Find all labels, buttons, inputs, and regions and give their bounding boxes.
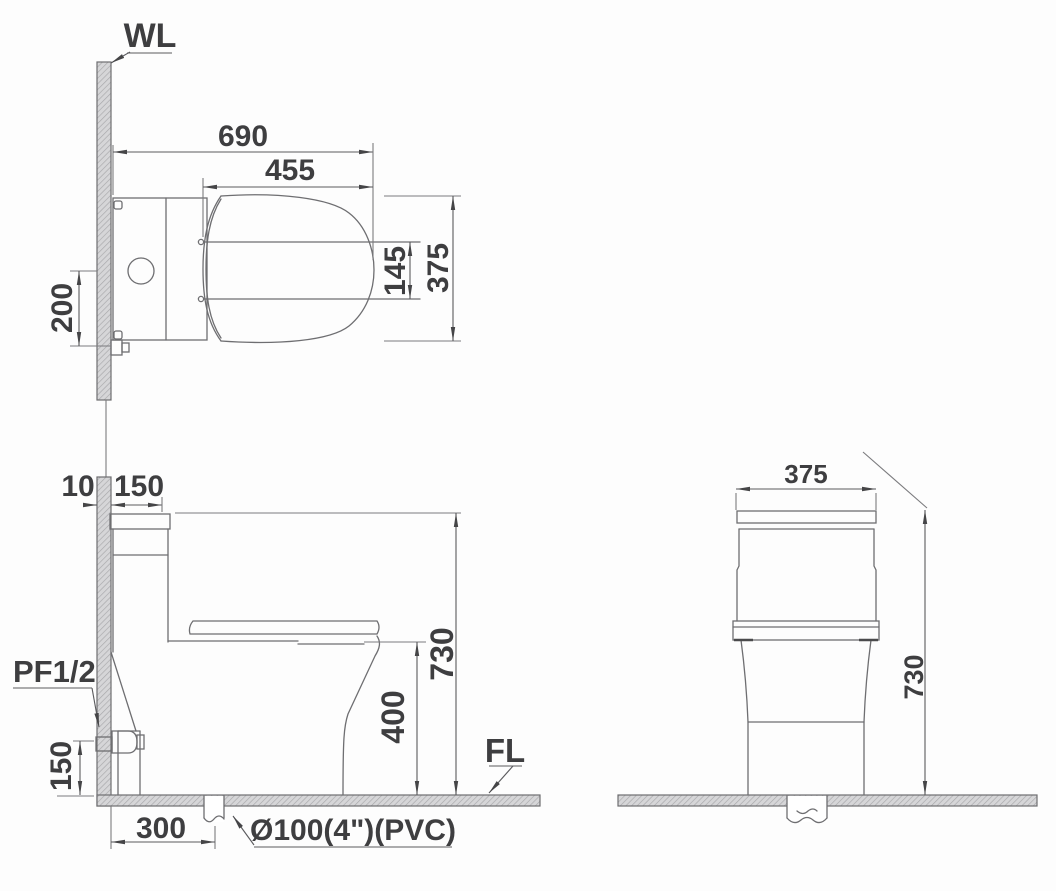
dim-overall-height-front: 730 (899, 654, 929, 699)
floor-section-side (97, 795, 540, 806)
dim-overall-depth: 690 (218, 120, 268, 153)
floor-line-label: FL (485, 732, 525, 769)
front-dimensions: 375 730 (736, 452, 929, 795)
supply-fitting-plan (111, 340, 129, 355)
drawing-canvas: WL 690 (0, 0, 1056, 891)
floor-line-leader (489, 766, 513, 793)
toilet-side-profile (110, 514, 379, 795)
plan-view: WL 690 (46, 17, 461, 477)
dim-supply-height: 150 (45, 741, 78, 791)
dim-opening-width: 145 (379, 246, 412, 296)
side-view: 10 150 730 400 150 300 PF1/2 FL Ø100(4")… (13, 470, 540, 849)
supply-label: PF1/2 (13, 654, 96, 689)
drain-pipe-side (204, 796, 224, 822)
dim-overall-width-front: 375 (784, 459, 827, 489)
toilet-front-outline (733, 511, 879, 795)
drain-pipe-front (787, 796, 827, 823)
wall-section-side (97, 477, 111, 806)
dim-seat-depth: 455 (265, 154, 315, 187)
water-line-label: WL (124, 17, 177, 55)
dim-rim-height: 400 (375, 690, 411, 743)
water-line-leader (111, 52, 130, 63)
dim-outlet-from-wall: 300 (136, 812, 186, 845)
wall-section-plan (97, 62, 111, 400)
tank-plan-outline (113, 198, 207, 340)
flush-button-plan (128, 258, 154, 284)
toilet-dimension-drawing: WL 690 (0, 0, 1056, 891)
dim-tank-top-depth: 150 (114, 470, 164, 503)
drain-pipe-label: Ø100(4")(PVC) (250, 814, 456, 847)
dim-supply-offset: 200 (46, 283, 79, 333)
dim-wall-gap: 10 (61, 470, 94, 503)
front-view: 375 730 (618, 452, 1037, 823)
dim-overall-height-side: 730 (424, 627, 460, 680)
dim-overall-width-plan: 375 (422, 243, 455, 293)
